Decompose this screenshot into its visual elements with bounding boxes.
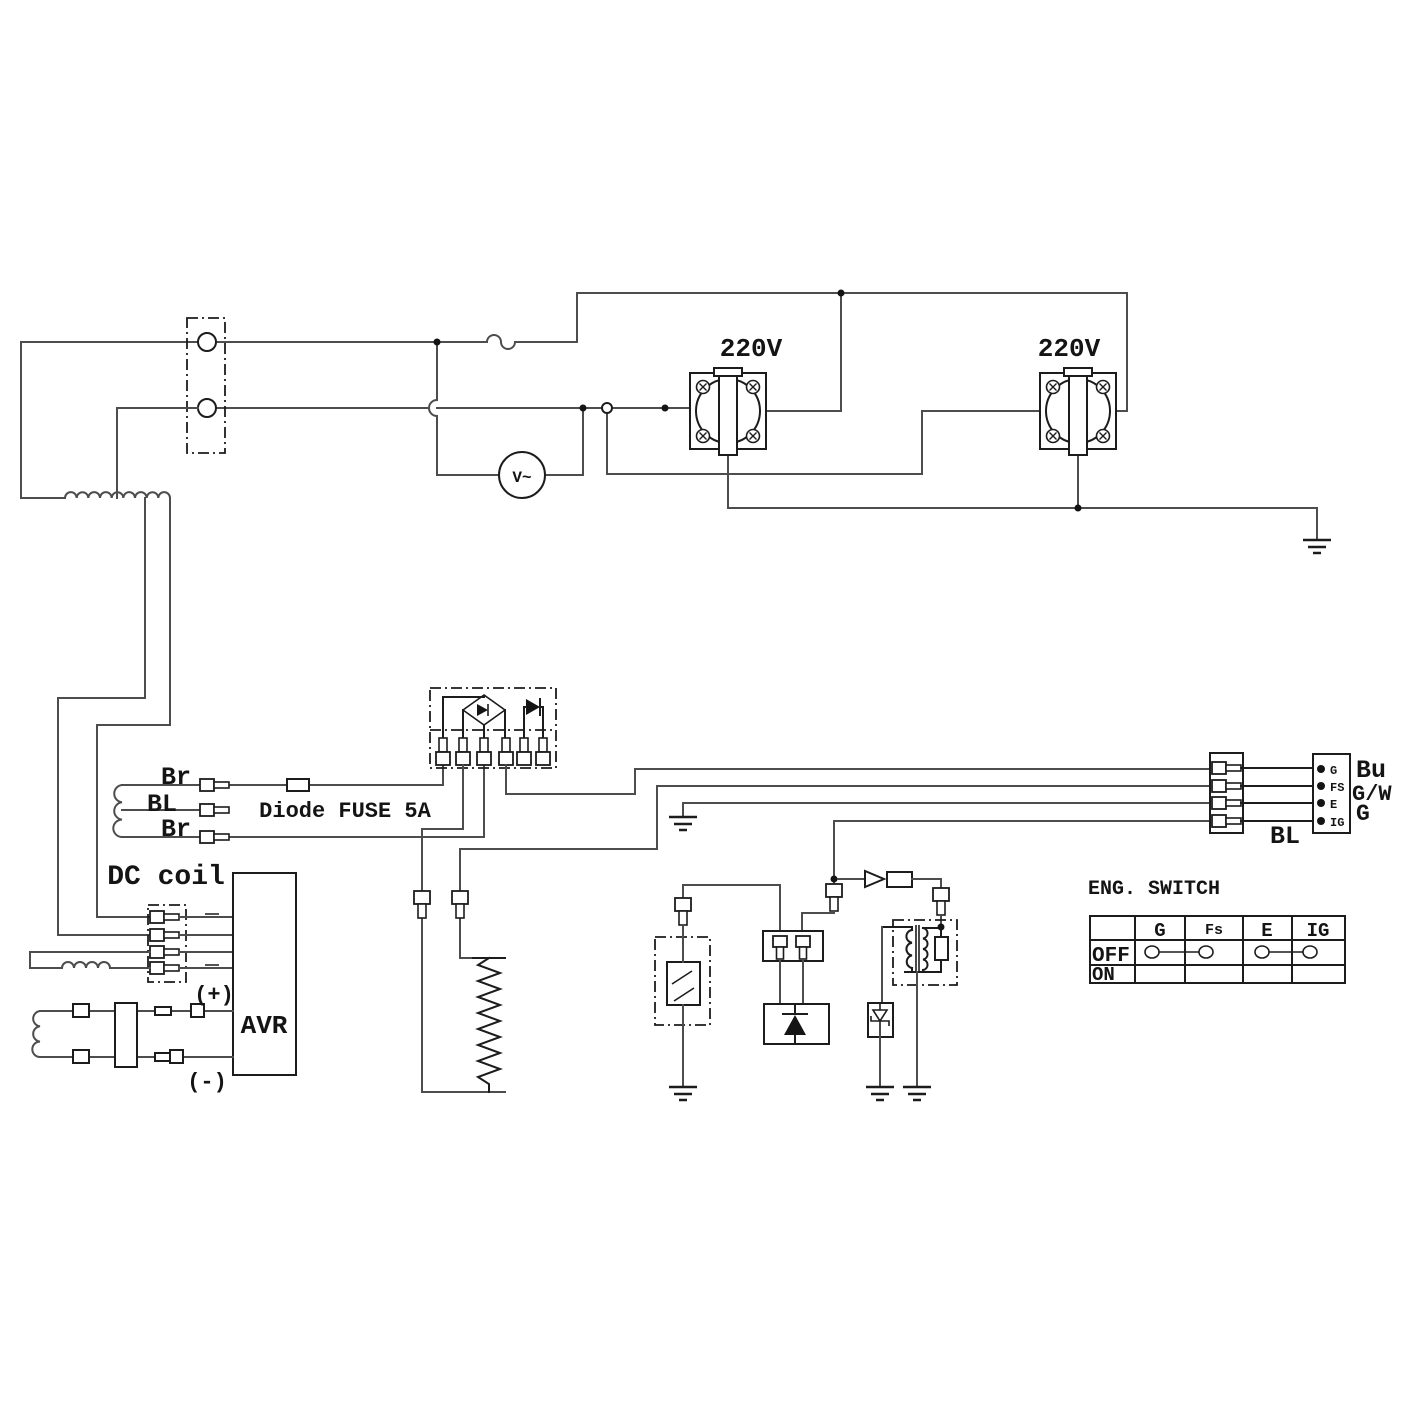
connector-terminal <box>1212 797 1241 809</box>
col-header-g: G <box>1154 920 1165 942</box>
plug-pin-dot <box>1317 799 1325 807</box>
minus-label: (-) <box>187 1070 227 1095</box>
secondary-coil <box>923 928 928 970</box>
spade-terminal <box>200 804 229 816</box>
avr-box <box>233 873 296 1075</box>
rectifier-pin <box>499 738 513 765</box>
wire-e-line <box>683 803 1210 817</box>
plug-pin-dot <box>1317 817 1325 825</box>
junction-dot <box>938 924 945 931</box>
earth-ground-icon <box>866 1087 894 1100</box>
wire-phase-main <box>216 293 1127 411</box>
pin-terminal <box>155 1053 171 1061</box>
wire-color-label-br-top: Br <box>161 763 191 792</box>
ignition-section <box>655 871 957 1100</box>
outlet1-bar-cap <box>714 368 742 376</box>
junction-dot <box>434 339 441 346</box>
stator-main-winding <box>21 408 198 935</box>
sense-coil-loop <box>30 952 150 968</box>
field-terminal <box>73 1050 89 1063</box>
junction-dot <box>1075 505 1082 512</box>
outlet-220v-1: 220V <box>690 334 783 455</box>
pin-terminal <box>170 1050 183 1063</box>
connector-terminal <box>1212 815 1241 827</box>
outlet2-voltage-label: 220V <box>1038 334 1101 364</box>
wire-g-line <box>506 765 1210 794</box>
dc-coil-avr-section: DC coil AVR (+) (-) <box>30 862 296 1095</box>
terminal-block-contact-1 <box>198 333 216 351</box>
connector-leads <box>1241 768 1313 821</box>
rectifier-unit <box>430 688 556 768</box>
earth-ground-icon <box>903 1087 931 1100</box>
dc-coil-label: DC coil <box>107 862 225 893</box>
pin-label-fs: FS <box>1330 781 1344 795</box>
col-header-ig: IG <box>1307 920 1330 942</box>
wire-resistor-right-down <box>460 918 473 958</box>
spark-unit <box>764 1004 829 1044</box>
resistor-body <box>887 872 912 887</box>
wire-earth-main <box>728 455 1317 540</box>
bullet-terminal <box>414 891 430 918</box>
output-terminal-block <box>187 318 225 453</box>
outlet-220v-2: 220V <box>1038 334 1116 455</box>
outlet1-bar <box>719 370 737 455</box>
primary-coil <box>906 930 912 968</box>
plug-resistor <box>935 937 948 960</box>
wire-color-label-br-bottom: Br <box>161 815 191 844</box>
screw-icon <box>747 381 760 394</box>
eng-switch-title: ENG. SWITCH <box>1088 878 1220 901</box>
brush-holder-block <box>115 1003 137 1067</box>
outlet2-bar-cap <box>1064 368 1092 376</box>
spade-terminal <box>200 831 229 843</box>
earth-ground-icon <box>669 817 697 830</box>
screw-icon <box>747 430 760 443</box>
single-diode-icon <box>526 699 540 715</box>
contact-circle <box>1255 946 1269 958</box>
fuse-body <box>287 779 309 791</box>
surge-protector <box>866 1003 894 1100</box>
charge-winding: Br BL Br Diode FUSE 5A <box>113 763 484 844</box>
terminal-block-contact-2 <box>198 399 216 417</box>
screw-icon <box>1097 430 1110 443</box>
earth-ground-icon <box>1303 540 1331 553</box>
junction-dot <box>580 405 587 412</box>
outlet1-voltage-label: 220V <box>720 334 783 364</box>
pin-label-e: E <box>1330 798 1337 812</box>
rectifier-pin <box>456 738 470 765</box>
wire-phase-left <box>21 342 198 498</box>
connector-terminal <box>1212 780 1241 792</box>
dc-connector-terminal <box>150 946 179 958</box>
screw-icon <box>1097 381 1110 394</box>
dc-connector-terminal <box>150 962 179 974</box>
connector-point <box>602 403 612 413</box>
field-terminal <box>73 1004 89 1017</box>
wire-color-bu: Bu <box>1356 756 1386 785</box>
polarity-tick <box>205 914 219 965</box>
main-coil <box>21 492 170 498</box>
charge-coil <box>113 785 122 837</box>
ignition-coil-wiring <box>882 927 941 972</box>
wire-br-top-to-rectifier <box>229 765 443 785</box>
bullet-terminal <box>675 898 691 925</box>
rectifier-pin <box>477 738 491 765</box>
wire-stop-to-spark-unit <box>780 961 803 1004</box>
rectifier-pin <box>536 738 550 765</box>
voltmeter: V~ <box>499 452 545 498</box>
col-header-e: E <box>1261 920 1272 942</box>
wire-coil-tap <box>117 408 198 498</box>
row-label-on: ON <box>1092 964 1115 986</box>
resistor-zigzag <box>478 958 500 1092</box>
pin-terminal <box>155 1007 171 1015</box>
screw-icon <box>697 381 710 394</box>
diode-icon <box>865 871 884 887</box>
field-coil <box>32 1011 40 1057</box>
generator-wiring-diagram: V~ 220V 220V <box>0 0 1413 1413</box>
rectifier-pin <box>436 738 450 765</box>
wire-color-bl: BL <box>1270 822 1300 851</box>
contact-circle <box>1199 946 1213 958</box>
wire-color-g: G <box>1356 801 1370 827</box>
stop-connector-outline <box>763 931 823 961</box>
oil-level-switch <box>655 925 710 1100</box>
earth-ground-icon <box>669 1087 697 1100</box>
junction-dot <box>662 405 669 412</box>
plug-pin-dot <box>1317 765 1325 773</box>
pin-label-ig: IG <box>1330 816 1344 830</box>
col-header-fs: Fs <box>1205 922 1223 939</box>
engine-switch-connector: G FS E IG Bu G/W G BL <box>1210 753 1392 851</box>
wire-neutral-loop-outlet2 <box>607 411 1040 474</box>
bullet-terminal <box>452 891 468 918</box>
spade-terminal <box>200 779 229 791</box>
contact-circle <box>1303 946 1317 958</box>
wiring-diagram-page: V~ 220V 220V <box>0 0 1413 1413</box>
screw-icon <box>1047 430 1060 443</box>
coil-core <box>916 925 919 972</box>
bridge-diode-icon <box>477 704 488 716</box>
mains-output-section: V~ 220V 220V <box>21 290 1331 554</box>
voltmeter-label: V~ <box>512 469 531 487</box>
wire-diode-branch-right <box>912 879 941 888</box>
screw-icon <box>1047 381 1060 394</box>
connector-terminal <box>1212 762 1241 774</box>
rectifier-pin <box>517 738 531 765</box>
outlet2-bar <box>1069 370 1087 455</box>
wire-voltmeter-right <box>545 412 583 475</box>
diode-fuse-label: Diode FUSE 5A <box>259 799 431 824</box>
wire-ig-to-stop-box <box>802 911 834 931</box>
bullet-terminal <box>826 884 842 911</box>
bullet-terminal <box>933 888 949 915</box>
control-wiring <box>506 765 1210 884</box>
pin-label-g: G <box>1330 764 1337 778</box>
dc-connector-terminal <box>150 911 179 923</box>
junction-dot <box>831 876 838 883</box>
wire-oil-sensor-top <box>683 885 780 931</box>
contact-circle <box>1145 946 1159 958</box>
junction-dot <box>838 290 845 297</box>
screw-icon <box>697 430 710 443</box>
wire-coil-tail-b <box>97 498 170 917</box>
plus-label: (+) <box>194 983 234 1008</box>
dc-connector-terminal <box>150 929 179 941</box>
avr-label: AVR <box>241 1011 288 1041</box>
engine-switch-table: ENG. SWITCH G Fs E IG OFF ON <box>1088 878 1345 986</box>
plug-pin-dot <box>1317 782 1325 790</box>
stop-connector-box <box>763 931 823 961</box>
